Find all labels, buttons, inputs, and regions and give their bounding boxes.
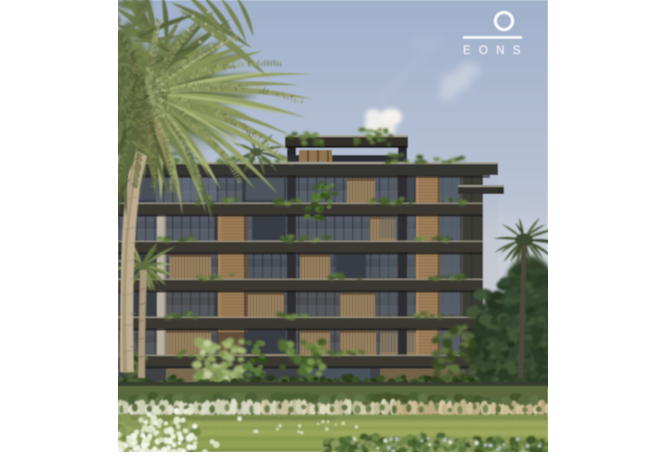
svg-text:EONS: EONS — [463, 44, 529, 57]
